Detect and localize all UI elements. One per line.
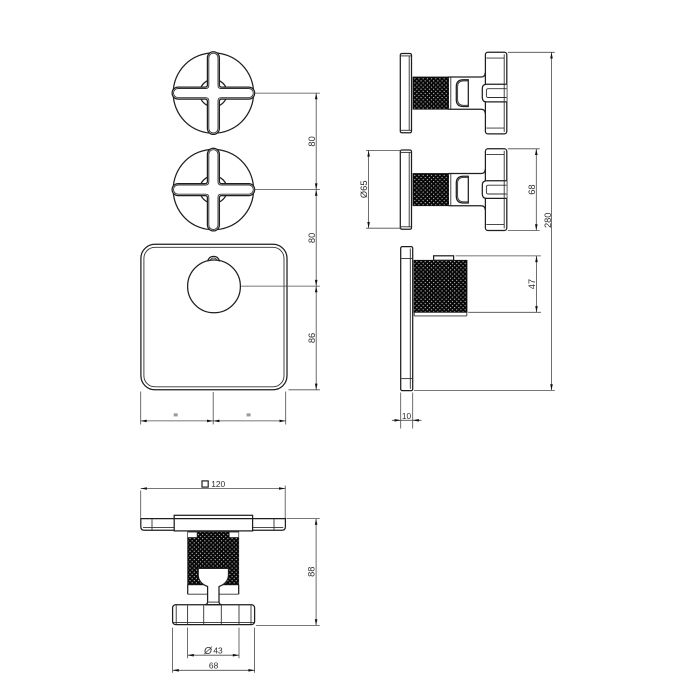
svg-text:Ø65: Ø65	[359, 181, 369, 199]
svg-text:88: 88	[307, 567, 317, 577]
svg-text:10: 10	[402, 411, 412, 421]
svg-text:68: 68	[527, 184, 537, 194]
svg-text:80: 80	[307, 136, 317, 146]
svg-text:280: 280	[543, 213, 553, 229]
svg-text:80: 80	[307, 233, 317, 243]
svg-text:120: 120	[211, 479, 225, 489]
svg-text:68: 68	[209, 660, 219, 670]
svg-text:86: 86	[307, 333, 317, 343]
svg-text:47: 47	[527, 279, 537, 289]
svg-text:Ø: Ø	[203, 646, 213, 657]
svg-text:43: 43	[213, 645, 223, 655]
